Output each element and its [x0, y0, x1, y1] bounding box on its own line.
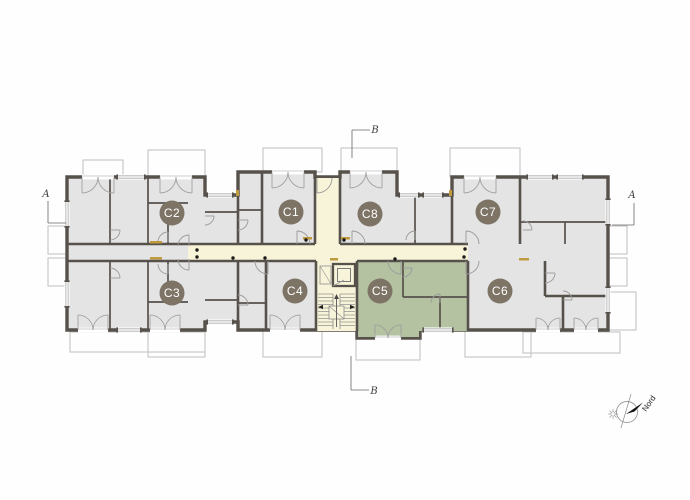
apartment-badge-c2: C2	[160, 201, 185, 226]
section-marker-a-right: A	[627, 190, 635, 201]
apartment-badge-c8: C8	[358, 202, 383, 227]
section-marker-b-bottom: B	[369, 386, 377, 397]
north-label: Nord	[640, 394, 657, 413]
apartment-label: C2	[164, 206, 180, 220]
section-marker-b-top: B	[370, 125, 378, 136]
apartment-label: C8	[362, 207, 378, 221]
apartment-badge-c7: C7	[476, 200, 501, 225]
floor-plan: C1C2C3C4C5C6C7C8AABBNord	[0, 0, 690, 500]
apartment-badge-c6: C6	[488, 279, 513, 304]
north-compass: Nord	[608, 394, 658, 428]
apartment-badge-c1: C1	[279, 200, 304, 225]
apartment-badge-c3: C3	[160, 281, 185, 306]
apartment-badge-c4: C4	[283, 279, 308, 304]
apartment-label: C5	[372, 284, 388, 298]
sun-icon	[608, 409, 618, 419]
apartment-label: C4	[287, 284, 303, 298]
apartment-badge-c5: C5	[368, 279, 393, 304]
apartment-label: C7	[480, 205, 496, 219]
apartment-label: C1	[283, 205, 299, 219]
section-marker-a-left: A	[41, 189, 49, 200]
apartment-label: C3	[164, 286, 180, 300]
floor-plan-drawing: C1C2C3C4C5C6C7C8AABBNord	[0, 0, 690, 500]
apartment-label: C6	[492, 284, 508, 298]
